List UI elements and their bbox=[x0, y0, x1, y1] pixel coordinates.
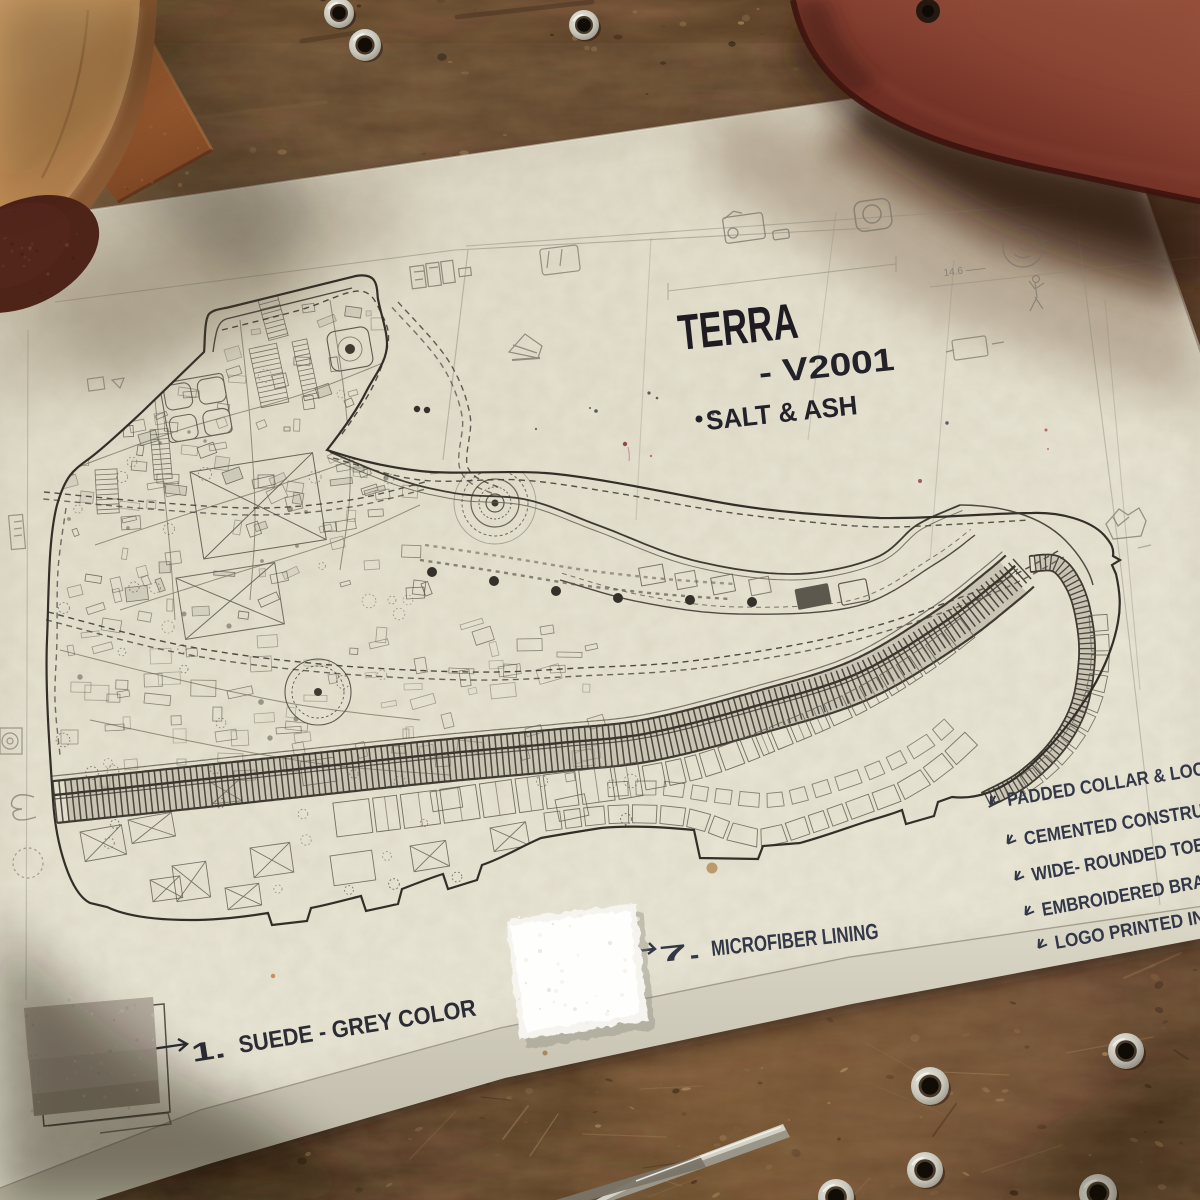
svg-text:1.: 1. bbox=[189, 1033, 227, 1068]
svg-text:7.: 7. bbox=[658, 938, 702, 967]
